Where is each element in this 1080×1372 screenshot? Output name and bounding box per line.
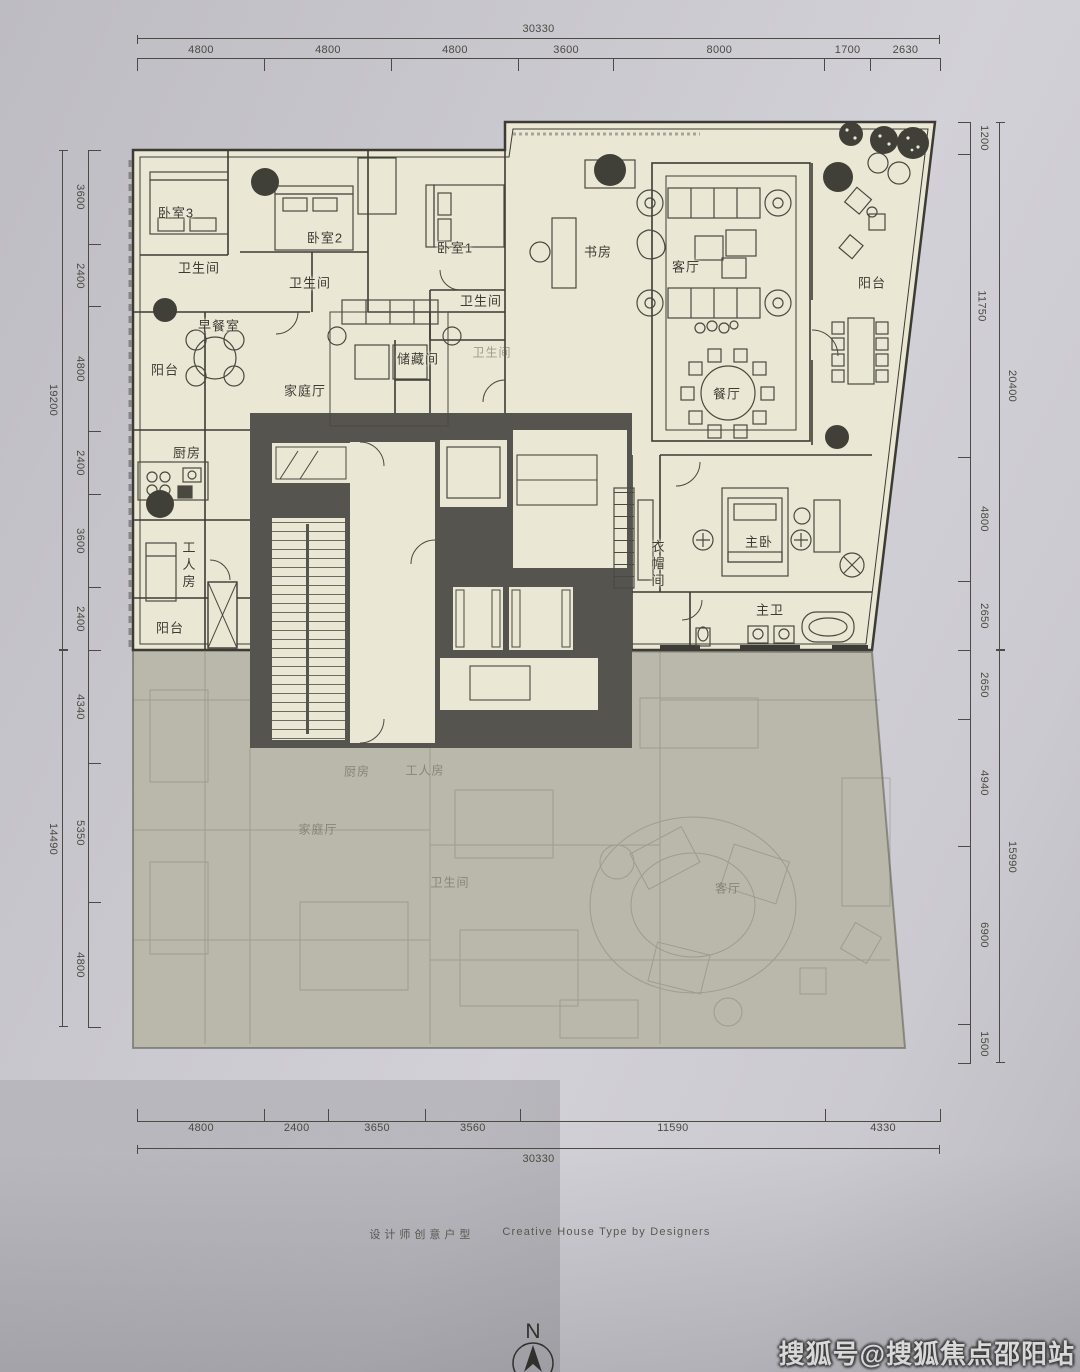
room-label-cloakroom: 衣帽间 [648, 540, 667, 591]
room-label-balcony-lower-left: 阳台 [156, 618, 184, 637]
room-label-bath-small: 卫生间 [472, 344, 511, 361]
watermark-text: 搜狐号@搜狐焦点邵阳站 [779, 1334, 1075, 1371]
faded-label-family-room: 家庭厅 [298, 821, 337, 838]
room-label-storage: 储藏间 [397, 349, 439, 368]
dim-top-segments: 4800480048003600800017002630 [137, 58, 941, 71]
room-label-bath3: 卫生间 [178, 258, 220, 277]
room-label-family-room: 家庭厅 [284, 381, 326, 400]
faded-label-kitchen: 厨房 [344, 763, 370, 780]
dim-left-upper-segments: 360024004800240036002400 [88, 150, 101, 651]
room-label-bath2: 卫生间 [289, 273, 331, 292]
dim-left-lower-segments: 434053504800 [88, 650, 101, 1028]
room-label-dining: 餐厅 [713, 384, 741, 403]
room-label-breakfast: 早餐室 [198, 316, 240, 335]
room-label-living-room: 客厅 [672, 257, 700, 276]
dim-right-upper-total: 20400 [999, 122, 1000, 650]
dim-right-lower-total: 15990 [999, 650, 1000, 1063]
floor-plan-page: 30330 4800480048003600800017002630 48002… [0, 0, 1080, 1372]
room-label-bedroom1: 卧室1 [437, 238, 473, 257]
compass-north-label: N [525, 1320, 540, 1344]
room-label-balcony-right: 阳台 [858, 273, 886, 292]
room-label-study: 书房 [584, 242, 612, 261]
dim-left-upper-total: 19200 [62, 150, 63, 650]
caption-english: Creative House Type by Designers [502, 1226, 710, 1242]
faded-label-living-room: 客厅 [715, 880, 741, 897]
faded-label-maid-room: 工人房 [405, 762, 444, 779]
room-label-bath1: 卫生间 [460, 291, 502, 310]
room-label-bedroom3: 卧室3 [158, 203, 194, 222]
dim-bottom-segments: 4800240036503560115904330 [137, 1109, 941, 1122]
room-label-kitchen: 厨房 [173, 443, 201, 462]
service-core [208, 413, 632, 748]
compass-icon [513, 1343, 553, 1372]
faded-label-bath: 卫生间 [430, 874, 469, 891]
room-label-bedroom2: 卧室2 [307, 228, 343, 247]
room-label-master-bath: 主卫 [756, 600, 784, 619]
dim-bottom-total: 30330 [137, 1148, 940, 1149]
dim-right-lower-segments: 2650494069001500 [958, 650, 971, 1064]
caption-chinese: 设计师创意户型 [369, 1226, 474, 1242]
dim-right-upper-segments: 12001175048002650 [958, 122, 971, 651]
room-label-balcony-left: 阳台 [151, 360, 179, 379]
dim-left-lower-total: 14490 [62, 650, 63, 1027]
plan-caption: 设计师创意户型 Creative House Type by Designers [0, 1226, 1080, 1242]
room-label-master-bedroom: 主卧 [745, 532, 773, 551]
dim-top-total: 30330 [137, 38, 940, 39]
room-label-maid-room: 工人房 [179, 541, 198, 592]
